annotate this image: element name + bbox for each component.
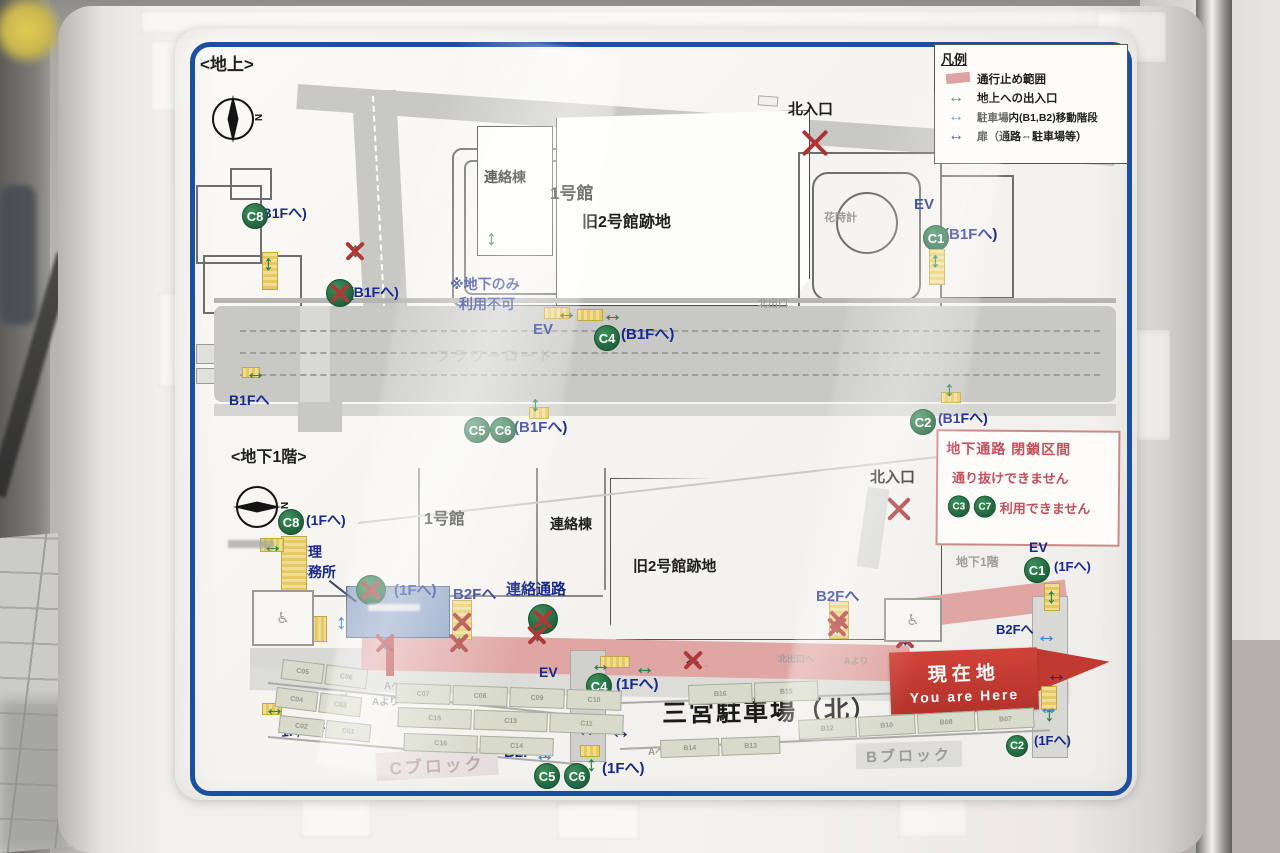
notice-line3: C3 C7 利用できません bbox=[948, 495, 1110, 518]
badge-c5: C5 bbox=[534, 763, 560, 789]
wc-icon: ♿ bbox=[252, 590, 314, 646]
map-label: 1号館 bbox=[424, 511, 465, 529]
badge-c2: C2 bbox=[1006, 735, 1028, 757]
badge-c3: C3 bbox=[948, 495, 970, 517]
map-label: 連絡通路 bbox=[506, 582, 566, 599]
badge-closed bbox=[326, 279, 354, 307]
illegible-small-text bbox=[368, 604, 420, 611]
exit-arrow-icon: ↕ bbox=[454, 632, 465, 653]
map-label: (B1Fへ) bbox=[514, 420, 567, 437]
parking-stall: B16 bbox=[688, 683, 753, 705]
parking-stall: B13 bbox=[721, 736, 781, 756]
parking-stall: C16 bbox=[403, 733, 478, 754]
parking-stall: B15 bbox=[754, 680, 819, 702]
map-label: 北入口 bbox=[788, 102, 833, 119]
blue-stairs-arrow-icon: ↔ bbox=[941, 109, 971, 125]
parking-stall: C08 bbox=[452, 685, 508, 707]
badge-c6: C6 bbox=[490, 417, 516, 443]
legend-item: ↔ 駐車場内(B1,B2)移動階段 bbox=[941, 109, 1121, 125]
notice-line3-label: 利用できません bbox=[1000, 497, 1091, 517]
exit-arrow-icon: ↔ bbox=[556, 302, 577, 323]
badge-c8: C8 bbox=[278, 509, 304, 535]
map-label: (B1Fへ) bbox=[621, 327, 674, 344]
map-label: 1号館 bbox=[550, 185, 593, 204]
closed-x-icon bbox=[798, 126, 832, 160]
compass-n: N bbox=[252, 114, 263, 121]
closure-notice: 地下通路 閉鎖区間 通り抜けできません C3 C7 利用できません bbox=[935, 429, 1120, 547]
pink-bar-icon bbox=[945, 72, 970, 84]
map-label: EV bbox=[539, 665, 558, 680]
parking-stall: B12 bbox=[798, 717, 856, 740]
badge-closed bbox=[356, 575, 386, 605]
notice-line1: 地下通路 閉鎖区間 bbox=[946, 438, 1110, 459]
road-stub bbox=[298, 402, 342, 432]
parking-stall: C10 bbox=[566, 689, 622, 711]
map-label: (1Fへ) bbox=[602, 761, 645, 778]
you-are-here-jp: 現在地 bbox=[927, 657, 1000, 686]
map-label: 北出口へ bbox=[778, 655, 814, 665]
legend-item: ↔ 地上への出入口 bbox=[941, 90, 1121, 106]
stairs-marker bbox=[577, 309, 603, 321]
b1-building1-wall bbox=[418, 468, 420, 596]
crosswalk bbox=[300, 306, 330, 402]
map-label: EV bbox=[1029, 540, 1048, 555]
map-label: 旧2号館跡地 bbox=[633, 559, 716, 576]
lane-dash bbox=[240, 374, 1100, 376]
stairs-arrow-icon: ↕ bbox=[380, 632, 391, 653]
compass-icon bbox=[212, 98, 254, 140]
map-label: B1Fへ bbox=[229, 393, 269, 408]
exit-arrow-icon: ↕ bbox=[1046, 586, 1057, 607]
legend-item-label: 駐車場内(B1,B2)移動階段 bbox=[977, 110, 1098, 125]
road-marking bbox=[758, 95, 779, 106]
map-label: (1Fへ) bbox=[1034, 734, 1071, 748]
exit-arrow-icon: ↕ bbox=[263, 253, 274, 274]
you-are-here-banner: 現在地 You are Here bbox=[889, 647, 1039, 714]
exit-arrow-icon: ↔ bbox=[602, 304, 623, 325]
exit-arrow-icon: ↕ bbox=[486, 228, 497, 249]
compass-needle bbox=[228, 95, 239, 143]
legend-item: 通行止め範囲 bbox=[941, 71, 1121, 87]
parking-stall: B07 bbox=[976, 708, 1034, 731]
exit-arrow-icon: ↕ bbox=[944, 379, 955, 400]
stairs-arrow-icon: ↕ bbox=[336, 612, 347, 633]
door-arrow-icon: ↔ bbox=[682, 649, 703, 670]
stairs-arrow-icon: ↔ bbox=[1038, 697, 1059, 718]
wc-icon: ♿ bbox=[884, 598, 942, 642]
parking-stall: C15 bbox=[397, 707, 472, 730]
map-label: 連絡棟 bbox=[550, 517, 592, 532]
map-label: (1Fへ) bbox=[1054, 560, 1091, 574]
ceiling-light bbox=[0, 0, 62, 66]
compass-n: N bbox=[278, 502, 289, 509]
b1-renraku-wall bbox=[604, 468, 606, 590]
old-building2-site bbox=[556, 110, 810, 306]
map-label: 地下1階 bbox=[956, 556, 999, 569]
closed-x-icon bbox=[450, 610, 474, 634]
illegible-small-text bbox=[228, 540, 274, 548]
map-label: 花時計 bbox=[824, 212, 857, 224]
closed-x-icon bbox=[884, 494, 914, 524]
map-label: 利用不可 bbox=[459, 297, 515, 312]
exit-arrow-icon: ↕ bbox=[532, 624, 543, 645]
map-label: 旧2号館跡地 bbox=[582, 214, 671, 232]
map-label: 北出口 bbox=[758, 299, 788, 310]
navy-door-arrow-icon: ↔ bbox=[941, 128, 971, 144]
green-exit-arrow-icon: ↔ bbox=[941, 90, 971, 106]
map-label: (1Fへ) bbox=[616, 677, 659, 694]
legend-item-label: 通行止め範囲 bbox=[977, 71, 1046, 87]
legend-item-label: 地上への出入口 bbox=[977, 90, 1058, 106]
compass-icon bbox=[236, 486, 278, 528]
scene: N 凡例 通行止め範囲 ↔ 地上への出入口 ↔ 駐車場内(B1,B2)移動階段 … bbox=[0, 0, 1280, 853]
closed-range-swatch bbox=[941, 71, 971, 87]
exit-arrow-icon: ↕ bbox=[930, 250, 941, 271]
badge-c7: C7 bbox=[974, 496, 996, 518]
map-label: (B1Fへ) bbox=[938, 411, 988, 426]
b-block-label: Bブロック bbox=[856, 741, 963, 770]
you-are-here-en: You are Here bbox=[910, 686, 1020, 706]
map-label: (1Fへ) bbox=[306, 513, 346, 528]
closed-x-icon bbox=[827, 608, 851, 632]
map-label: <地下1階> bbox=[231, 449, 307, 467]
map-label: (B1Fへ) bbox=[349, 285, 399, 300]
upper-left-building bbox=[230, 168, 272, 200]
legend-item: ↔ 扉（通路⇔駐車場等） bbox=[941, 128, 1121, 144]
badge-c4: C4 bbox=[594, 325, 620, 351]
b1-renraku-wall bbox=[536, 468, 538, 596]
badge-c1: C1 bbox=[923, 225, 949, 251]
exit-arrow-icon: ↔ bbox=[634, 657, 655, 678]
lane-dash bbox=[240, 352, 1100, 354]
exit-arrow-icon: ↕ bbox=[586, 754, 597, 775]
map-label: (1Fへ) bbox=[394, 583, 437, 600]
notice-line2: 通り抜けできません bbox=[952, 467, 1110, 487]
exit-arrow-icon: ↔ bbox=[245, 362, 266, 383]
map-label: Aより bbox=[844, 657, 868, 667]
map-label: 北入口 bbox=[870, 470, 915, 487]
map-label: (B1Fへ) bbox=[944, 227, 997, 244]
parking-stall: C07 bbox=[395, 683, 451, 705]
badge-c1: C1 bbox=[1024, 557, 1050, 583]
map-label: 連絡棟 bbox=[484, 170, 526, 185]
tape-strip bbox=[556, 802, 640, 840]
parking-stall: B10 bbox=[857, 714, 915, 737]
map-label: EV bbox=[914, 197, 934, 214]
compass-needle bbox=[233, 502, 281, 513]
parking-stall: C13 bbox=[473, 710, 548, 733]
parking-stall: C11 bbox=[549, 712, 624, 735]
parking-stall: B08 bbox=[917, 711, 975, 734]
door-arrow-icon: ↔ bbox=[1046, 664, 1067, 685]
map-label: EV bbox=[533, 322, 553, 339]
tape-strip bbox=[300, 796, 372, 838]
flower-road bbox=[214, 306, 1116, 402]
tape-strip bbox=[898, 798, 968, 838]
map-label: <地上> bbox=[200, 56, 254, 75]
exit-arrow-icon: ↕ bbox=[350, 240, 361, 261]
badge-c5: C5 bbox=[464, 417, 490, 443]
exit-arrow-icon: ↔ bbox=[590, 654, 611, 675]
legend-item-label: 扉（通路⇔駐車場等） bbox=[977, 128, 1087, 144]
map-label: B2Fへ bbox=[996, 623, 1034, 637]
legend-title: 凡例 bbox=[941, 49, 1121, 68]
exit-arrow-icon: ↕ bbox=[530, 394, 541, 415]
badge-c2: C2 bbox=[910, 409, 936, 435]
map-label: ※地下のみ bbox=[450, 277, 520, 292]
parking-stall: C09 bbox=[509, 687, 565, 709]
parking-stall: B14 bbox=[660, 738, 720, 758]
legend-box: 凡例 通行止め範囲 ↔ 地上への出入口 ↔ 駐車場内(B1,B2)移動階段 ↔ … bbox=[934, 44, 1128, 164]
blurred-person bbox=[0, 185, 36, 325]
map-label: フラワーロード bbox=[436, 349, 555, 364]
badge-c8: C8 bbox=[242, 203, 268, 229]
parking-stall: C14 bbox=[479, 736, 554, 757]
stairs-arrow-icon: ↔ bbox=[1036, 625, 1057, 646]
